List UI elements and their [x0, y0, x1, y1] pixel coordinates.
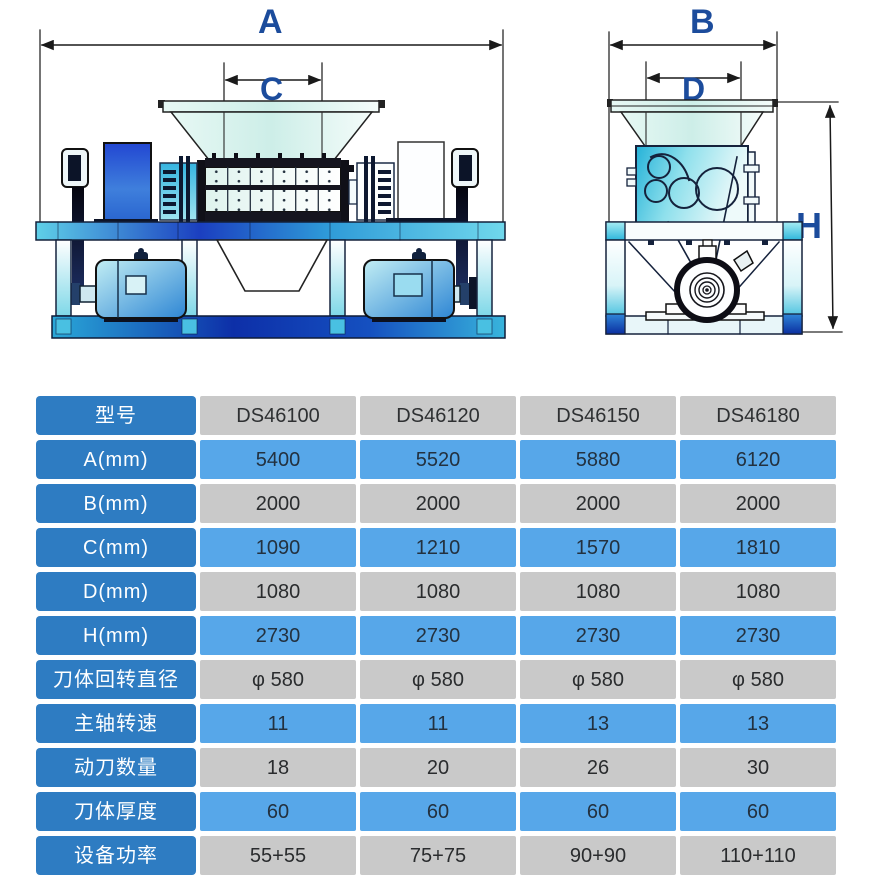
spec-value-cell: φ 580 [200, 660, 356, 699]
spec-label-cell: 刀体回转直径 [36, 660, 196, 699]
spec-label-cell: 刀体厚度 [36, 792, 196, 831]
left-blue-cabinet [104, 143, 151, 220]
spec-value-cell: 5880 [520, 440, 676, 479]
spec-value-cell: 1090 [200, 528, 356, 567]
cutter-chamber [192, 153, 354, 228]
spec-value-cell: 90+90 [520, 836, 676, 875]
spec-label-cell: 主轴转速 [36, 704, 196, 743]
technical-drawing: A C [0, 0, 870, 392]
spec-value-cell: 6120 [680, 440, 836, 479]
front-view: A C [36, 3, 505, 338]
front-hopper [158, 100, 385, 160]
spec-label-cell: C(mm) [36, 528, 196, 567]
dim-label-a: A [258, 3, 283, 41]
spec-value-cell: 110+110 [680, 836, 836, 875]
spec-value-cell: 13 [520, 704, 676, 743]
discharge-chute [217, 240, 327, 291]
model-header-cell: DS46120 [360, 396, 516, 435]
table-header-row: 型号 DS46100 DS46120 DS46150 DS46180 [36, 396, 836, 435]
left-coupling [160, 156, 197, 226]
spec-value-cell: 60 [360, 792, 516, 831]
spec-value-cell: φ 580 [360, 660, 516, 699]
spec-value-cell: 5400 [200, 440, 356, 479]
spec-value-cell: 1570 [520, 528, 676, 567]
table-row-blade-count: 动刀数量 18 20 26 30 [36, 748, 836, 787]
spec-value-cell: 1080 [680, 572, 836, 611]
spec-value-cell: 60 [200, 792, 356, 831]
table-row-blade-thickness: 刀体厚度 60 60 60 60 [36, 792, 836, 831]
spec-value-cell: 2730 [520, 616, 676, 655]
spec-label-cell: D(mm) [36, 572, 196, 611]
spec-value-cell: 2730 [360, 616, 516, 655]
table-row-h: H(mm) 2730 2730 2730 2730 [36, 616, 836, 655]
spec-table: 型号 DS46100 DS46120 DS46150 DS46180 A(mm)… [36, 396, 836, 875]
right-white-cabinet [398, 142, 444, 222]
spec-label-cell: H(mm) [36, 616, 196, 655]
spec-value-cell: 13 [680, 704, 836, 743]
spec-value-cell: 60 [680, 792, 836, 831]
model-header-label: 型号 [36, 396, 196, 435]
spec-value-cell: 30 [680, 748, 836, 787]
right-coupling [349, 156, 394, 226]
spec-value-cell: 2730 [680, 616, 836, 655]
spec-value-cell: 55+55 [200, 836, 356, 875]
spec-label-cell: 动刀数量 [36, 748, 196, 787]
spec-value-cell: 20 [360, 748, 516, 787]
spec-label-cell: B(mm) [36, 484, 196, 523]
shredder-spec-sheet: A C [0, 0, 870, 894]
spec-value-cell: 2000 [680, 484, 836, 523]
table-row-shaft-speed: 主轴转速 11 11 13 13 [36, 704, 836, 743]
spec-value-cell: 18 [200, 748, 356, 787]
spec-value-cell: 2730 [200, 616, 356, 655]
spec-label-cell: 设备功率 [36, 836, 196, 875]
spec-value-cell: 2000 [360, 484, 516, 523]
table-row-a: A(mm) 5400 5520 5880 6120 [36, 440, 836, 479]
spec-value-cell: 2000 [200, 484, 356, 523]
table-row-b: B(mm) 2000 2000 2000 2000 [36, 484, 836, 523]
spec-label-cell: A(mm) [36, 440, 196, 479]
model-header-cell: DS46150 [520, 396, 676, 435]
table-row-power: 设备功率 55+55 75+75 90+90 110+110 [36, 836, 836, 875]
side-view: B D H [606, 3, 842, 334]
side-hopper [607, 99, 778, 146]
left-motor [96, 248, 186, 322]
model-header-cell: DS46180 [680, 396, 836, 435]
dim-label-b: B [690, 3, 715, 41]
spec-value-cell: 1810 [680, 528, 836, 567]
spec-value-cell: 11 [200, 704, 356, 743]
spec-value-cell: φ 580 [680, 660, 836, 699]
spec-value-cell: 1080 [520, 572, 676, 611]
spec-value-cell: 11 [360, 704, 516, 743]
spec-value-cell: 2000 [520, 484, 676, 523]
spec-value-cell: 60 [520, 792, 676, 831]
spec-value-cell: φ 580 [520, 660, 676, 699]
spec-value-cell: 26 [520, 748, 676, 787]
table-row-d: D(mm) 1080 1080 1080 1080 [36, 572, 836, 611]
spec-value-cell: 1210 [360, 528, 516, 567]
spec-value-cell: 1080 [360, 572, 516, 611]
spec-value-cell: 1080 [200, 572, 356, 611]
model-header-cell: DS46100 [200, 396, 356, 435]
table-row-c: C(mm) 1090 1210 1570 1810 [36, 528, 836, 567]
table-row-rotor-diameter: 刀体回转直径 φ 580 φ 580 φ 580 φ 580 [36, 660, 836, 699]
spec-value-cell: 5520 [360, 440, 516, 479]
spec-value-cell: 75+75 [360, 836, 516, 875]
right-motor [364, 248, 454, 322]
